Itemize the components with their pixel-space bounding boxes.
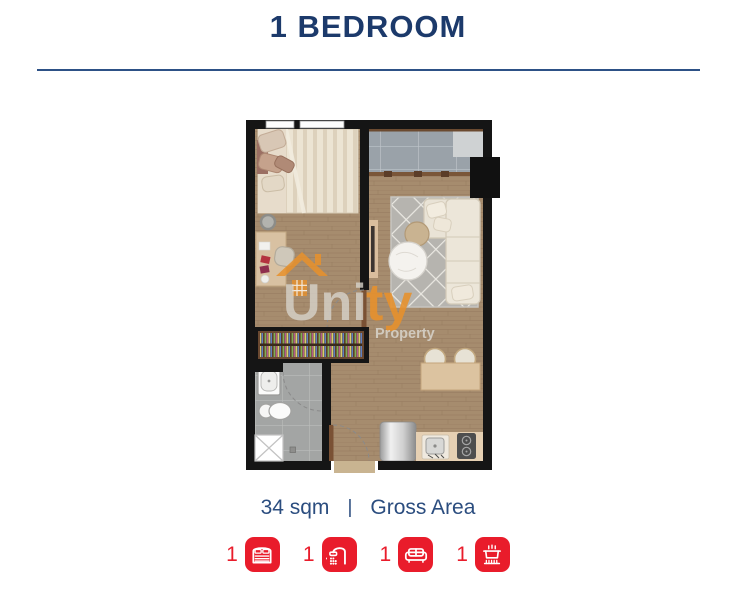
- floor-drain: [290, 447, 296, 453]
- bed-icon: [245, 537, 280, 572]
- bedroom-count: 1: [226, 543, 238, 567]
- kitchen-count: 1: [456, 543, 468, 567]
- area-label: Gross Area: [370, 496, 475, 520]
- wardrobe: [253, 327, 369, 363]
- balcony-tile-area: [369, 129, 483, 177]
- toilet: [259, 403, 291, 420]
- feature-kitchens: 1: [456, 537, 510, 572]
- area-value: 34 sqm: [261, 496, 330, 520]
- stove: [457, 433, 476, 459]
- area-separator: |: [347, 497, 352, 519]
- watermark-brand-gray: Uni: [283, 274, 367, 332]
- entrance-door: [329, 425, 334, 461]
- shower: [255, 435, 283, 461]
- feature-bedrooms: 1: [226, 537, 280, 572]
- kitchen-sink: [422, 435, 449, 459]
- title-divider: [37, 69, 700, 71]
- one-bedroom-card: 1 BEDROOM: [0, 0, 736, 600]
- shower-icon: [322, 537, 357, 572]
- feature-bathrooms: 1: [303, 537, 357, 572]
- watermark-brand-orange: ty: [366, 274, 412, 332]
- stool: [261, 215, 275, 229]
- feature-living-rooms: 1: [380, 537, 434, 572]
- floor-plan-image: Uni ty Property: [228, 100, 520, 490]
- bathroom-count: 1: [303, 543, 315, 567]
- sofa-count: 1: [380, 543, 392, 567]
- kitchen-icon: [475, 537, 510, 572]
- page-title: 1 BEDROOM: [0, 9, 736, 45]
- bed: [257, 128, 358, 213]
- floor-plan: Uni ty Property: [228, 100, 520, 490]
- tv: [371, 226, 375, 272]
- gross-area-row: 34 sqm | Gross Area: [0, 496, 736, 520]
- sofa-icon: [398, 537, 433, 572]
- refrigerator: [380, 422, 416, 461]
- dining-table: [421, 363, 480, 390]
- watermark-subtitle: Property: [375, 326, 435, 342]
- feature-list: 1 1: [0, 537, 736, 572]
- bedroom-divider-wall: [360, 129, 369, 290]
- ac-ledge: [470, 157, 500, 198]
- bedroom-windows: [266, 121, 344, 128]
